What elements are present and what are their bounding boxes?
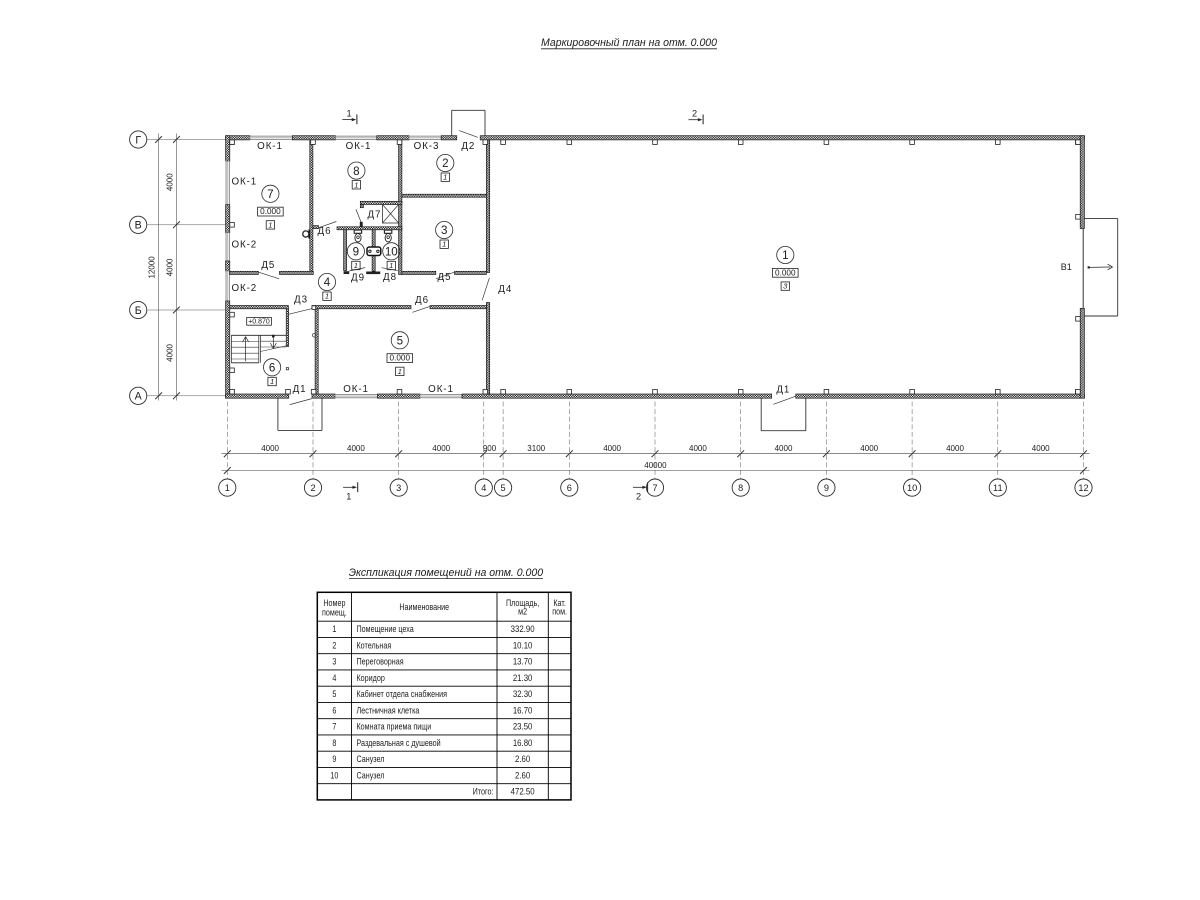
svg-text:1: 1: [346, 491, 351, 501]
svg-text:9: 9: [824, 483, 829, 493]
svg-text:10: 10: [330, 771, 338, 781]
svg-text:Комната приема пищи: Комната приема пищи: [357, 722, 432, 732]
svg-text:ОК-1: ОК-1: [232, 177, 258, 188]
svg-text:16.80: 16.80: [513, 737, 533, 748]
svg-text:8: 8: [353, 165, 359, 178]
svg-text:Итого:: Итого:: [473, 787, 494, 797]
svg-text:12: 12: [1078, 483, 1088, 493]
svg-text:Д5: Д5: [438, 272, 452, 283]
svg-text:А: А: [135, 391, 143, 403]
svg-text:10: 10: [907, 483, 917, 493]
svg-text:4000: 4000: [166, 343, 175, 361]
svg-text:4: 4: [324, 276, 331, 289]
svg-text:Номер: Номер: [323, 598, 346, 608]
svg-text:4: 4: [481, 483, 486, 493]
svg-text:В1: В1: [1061, 262, 1072, 272]
svg-text:ОК-3: ОК-3: [414, 141, 440, 152]
svg-text:1: 1: [325, 292, 329, 301]
svg-text:5: 5: [332, 689, 336, 699]
svg-text:0.000: 0.000: [775, 268, 796, 277]
svg-text:6: 6: [269, 362, 275, 375]
svg-text:Д9: Д9: [351, 272, 365, 283]
svg-text:В: В: [135, 220, 142, 232]
svg-text:1: 1: [782, 249, 788, 262]
svg-text:2: 2: [332, 641, 336, 651]
svg-text:Санузел: Санузел: [357, 771, 385, 781]
svg-text:4000: 4000: [432, 444, 450, 453]
svg-text:3: 3: [441, 224, 447, 237]
svg-text:1: 1: [354, 180, 358, 189]
svg-text:11: 11: [993, 483, 1003, 493]
svg-text:332.90: 332.90: [511, 624, 535, 635]
svg-text:3100: 3100: [527, 444, 545, 453]
svg-text:1: 1: [225, 483, 230, 493]
svg-text:Помещение цеха: Помещение цеха: [357, 624, 415, 634]
svg-text:1: 1: [443, 173, 447, 182]
svg-text:472.50: 472.50: [511, 786, 535, 797]
svg-text:+0.870: +0.870: [248, 316, 270, 325]
svg-text:4000: 4000: [166, 258, 175, 276]
svg-text:1: 1: [389, 261, 393, 270]
svg-text:10: 10: [385, 246, 398, 259]
svg-text:5: 5: [397, 335, 403, 348]
svg-text:4000: 4000: [1032, 444, 1050, 453]
svg-text:Д2: Д2: [461, 141, 475, 152]
svg-text:0.000: 0.000: [260, 207, 281, 216]
svg-text:Наименование: Наименование: [399, 602, 449, 612]
svg-text:4: 4: [332, 673, 336, 683]
svg-text:900: 900: [483, 444, 497, 453]
svg-text:пом.: пом.: [552, 607, 567, 617]
svg-text:3: 3: [396, 483, 401, 493]
svg-text:ОК-2: ОК-2: [232, 240, 258, 251]
svg-text:Экспликация помещений на отм.: Экспликация помещений на отм. 0.000: [349, 566, 543, 578]
svg-text:2: 2: [692, 109, 697, 119]
svg-text:1: 1: [332, 624, 336, 634]
svg-text:Д5: Д5: [261, 260, 275, 271]
svg-text:1: 1: [442, 240, 446, 249]
svg-text:7: 7: [332, 722, 336, 732]
svg-text:Д1: Д1: [776, 384, 790, 395]
svg-text:7: 7: [652, 483, 657, 493]
svg-text:13.70: 13.70: [513, 656, 533, 667]
svg-text:23.50: 23.50: [513, 721, 533, 732]
svg-text:4000: 4000: [775, 444, 793, 453]
svg-text:Переговорная: Переговорная: [357, 657, 404, 667]
svg-text:Д8: Д8: [383, 272, 397, 283]
svg-text:Раздевальная с душевой: Раздевальная с душевой: [357, 738, 441, 748]
svg-text:ОК-1: ОК-1: [346, 141, 372, 152]
svg-text:4000: 4000: [603, 444, 621, 453]
svg-text:ОК-1: ОК-1: [343, 384, 369, 395]
svg-text:ОК-1: ОК-1: [428, 384, 454, 395]
svg-text:ОК-1: ОК-1: [257, 141, 283, 152]
svg-text:помещ.: помещ.: [322, 608, 347, 618]
svg-text:Д7: Д7: [368, 209, 382, 220]
svg-text:2.60: 2.60: [515, 770, 531, 781]
svg-text:6: 6: [332, 706, 336, 716]
svg-text:м2: м2: [518, 607, 527, 617]
svg-text:8: 8: [738, 483, 743, 493]
svg-text:4000: 4000: [689, 444, 707, 453]
svg-text:1: 1: [268, 220, 272, 229]
svg-text:Лестничная клетка: Лестничная клетка: [357, 706, 420, 716]
svg-text:Маркировочный план на отм. 0.0: Маркировочный план на отм. 0.000: [541, 37, 717, 49]
svg-text:12000: 12000: [148, 256, 157, 279]
svg-text:4000: 4000: [860, 444, 878, 453]
svg-text:Д4: Д4: [498, 284, 512, 295]
svg-text:5: 5: [501, 483, 506, 493]
svg-text:9: 9: [332, 754, 336, 764]
svg-text:9: 9: [353, 246, 359, 259]
svg-text:4000: 4000: [166, 173, 175, 191]
svg-text:4000: 4000: [261, 444, 279, 453]
svg-text:10.10: 10.10: [513, 640, 533, 651]
svg-text:1: 1: [354, 261, 358, 270]
svg-text:2: 2: [310, 483, 315, 493]
svg-text:0.000: 0.000: [390, 354, 411, 363]
svg-text:32.30: 32.30: [513, 689, 533, 700]
svg-text:Б: Б: [135, 305, 142, 317]
svg-text:Д6: Д6: [415, 295, 429, 306]
svg-text:6: 6: [567, 483, 572, 493]
svg-text:2: 2: [442, 157, 448, 170]
svg-text:Д1: Д1: [293, 384, 307, 395]
svg-text:Санузел: Санузел: [357, 754, 385, 764]
svg-text:1: 1: [346, 109, 351, 119]
svg-text:1: 1: [398, 367, 402, 376]
svg-text:ОК-2: ОК-2: [232, 283, 258, 294]
svg-text:Кабинет отдела снабжения: Кабинет отдела снабжения: [357, 689, 448, 699]
svg-text:2.60: 2.60: [515, 754, 531, 765]
svg-text:Д6: Д6: [318, 226, 332, 237]
svg-text:1: 1: [270, 377, 274, 386]
svg-text:4000: 4000: [347, 444, 365, 453]
svg-text:Д3: Д3: [294, 295, 308, 306]
svg-text:21.30: 21.30: [513, 672, 533, 683]
svg-text:3: 3: [332, 657, 336, 667]
svg-text:16.70: 16.70: [513, 705, 533, 716]
svg-text:8: 8: [332, 738, 336, 748]
svg-text:Коридор: Коридор: [357, 673, 386, 683]
svg-text:2: 2: [636, 491, 641, 501]
svg-text:4000: 4000: [946, 444, 964, 453]
svg-text:7: 7: [267, 188, 273, 201]
svg-text:Котельная: Котельная: [357, 641, 392, 651]
svg-text:40000: 40000: [644, 461, 667, 470]
svg-text:Г: Г: [135, 134, 141, 146]
